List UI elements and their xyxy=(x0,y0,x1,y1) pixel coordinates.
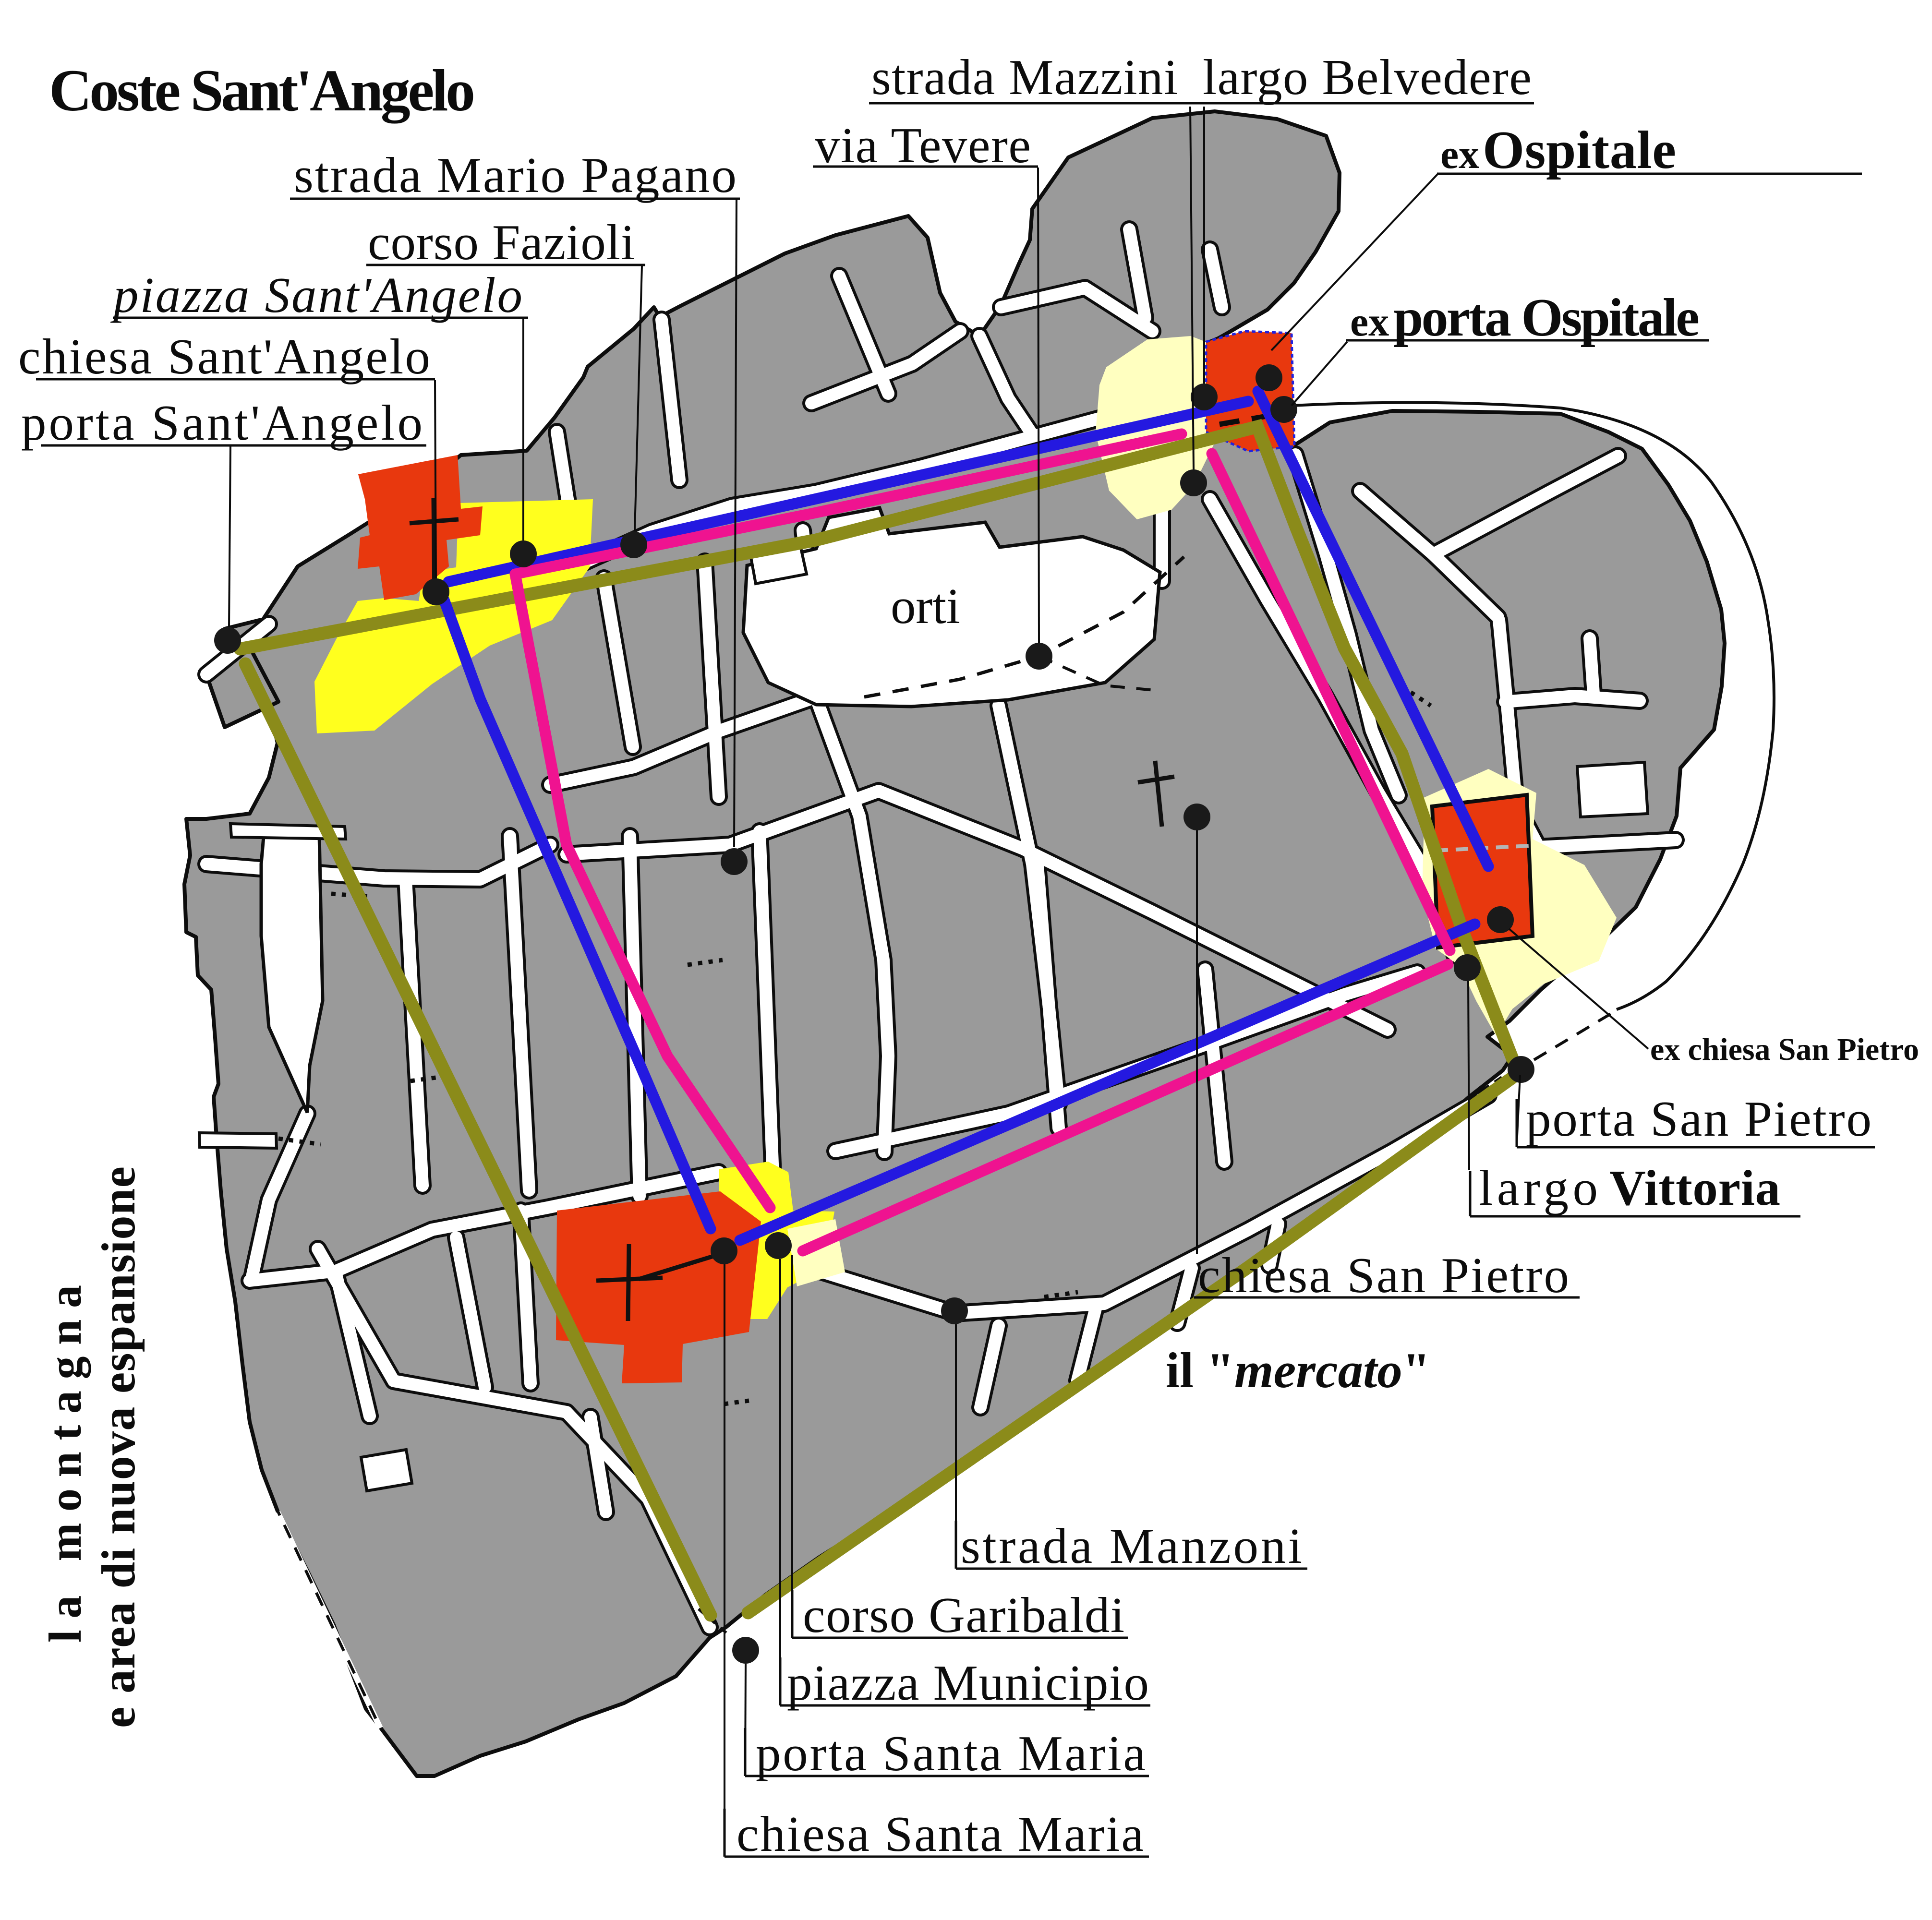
svg-text:strada Manzoni: strada Manzoni xyxy=(961,1518,1302,1574)
svg-text:strada Mario Pagano: strada Mario Pagano xyxy=(294,147,737,203)
svg-text:porta Sant'Angelo: porta Sant'Angelo xyxy=(21,395,423,451)
svg-text:largo Belvedere: largo Belvedere xyxy=(1203,49,1532,105)
svg-text:Coste Sant'Angelo: Coste Sant'Angelo xyxy=(49,58,475,124)
svg-text:strada Mazzini: strada Mazzini xyxy=(871,49,1178,105)
svg-text:corso Garibaldi: corso Garibaldi xyxy=(803,1587,1124,1643)
svg-text:piazza Sant'Angelo: piazza Sant'Angelo xyxy=(110,267,522,323)
svg-text:Vittoria: Vittoria xyxy=(1609,1160,1780,1216)
svg-text:ex: ex xyxy=(1350,299,1389,345)
svg-text:via Tevere: via Tevere xyxy=(815,117,1031,173)
svg-text:corso Fazioli: corso Fazioli xyxy=(368,214,635,270)
svg-text:largo: largo xyxy=(1479,1160,1598,1216)
svg-text:ex: ex xyxy=(1440,131,1479,177)
svg-text:il "mercato": il "mercato" xyxy=(1166,1342,1430,1398)
svg-text:piazza Municipio: piazza Municipio xyxy=(787,1655,1149,1711)
svg-text:chiesa Sant'Angelo: chiesa Sant'Angelo xyxy=(18,328,430,384)
svg-text:Ospitale: Ospitale xyxy=(1483,120,1676,180)
svg-text:chiesa Santa Maria: chiesa Santa Maria xyxy=(737,1806,1144,1862)
svg-text:ex chiesa San Pietro: ex chiesa San Pietro xyxy=(1650,1032,1919,1067)
svg-text:e area di nuova espansione: e area di nuova espansione xyxy=(92,1166,145,1728)
svg-text:orti: orti xyxy=(891,578,960,634)
svg-text:porta Ospitale: porta Ospitale xyxy=(1393,288,1700,348)
svg-text:chiesa San Pietro: chiesa San Pietro xyxy=(1198,1247,1569,1303)
